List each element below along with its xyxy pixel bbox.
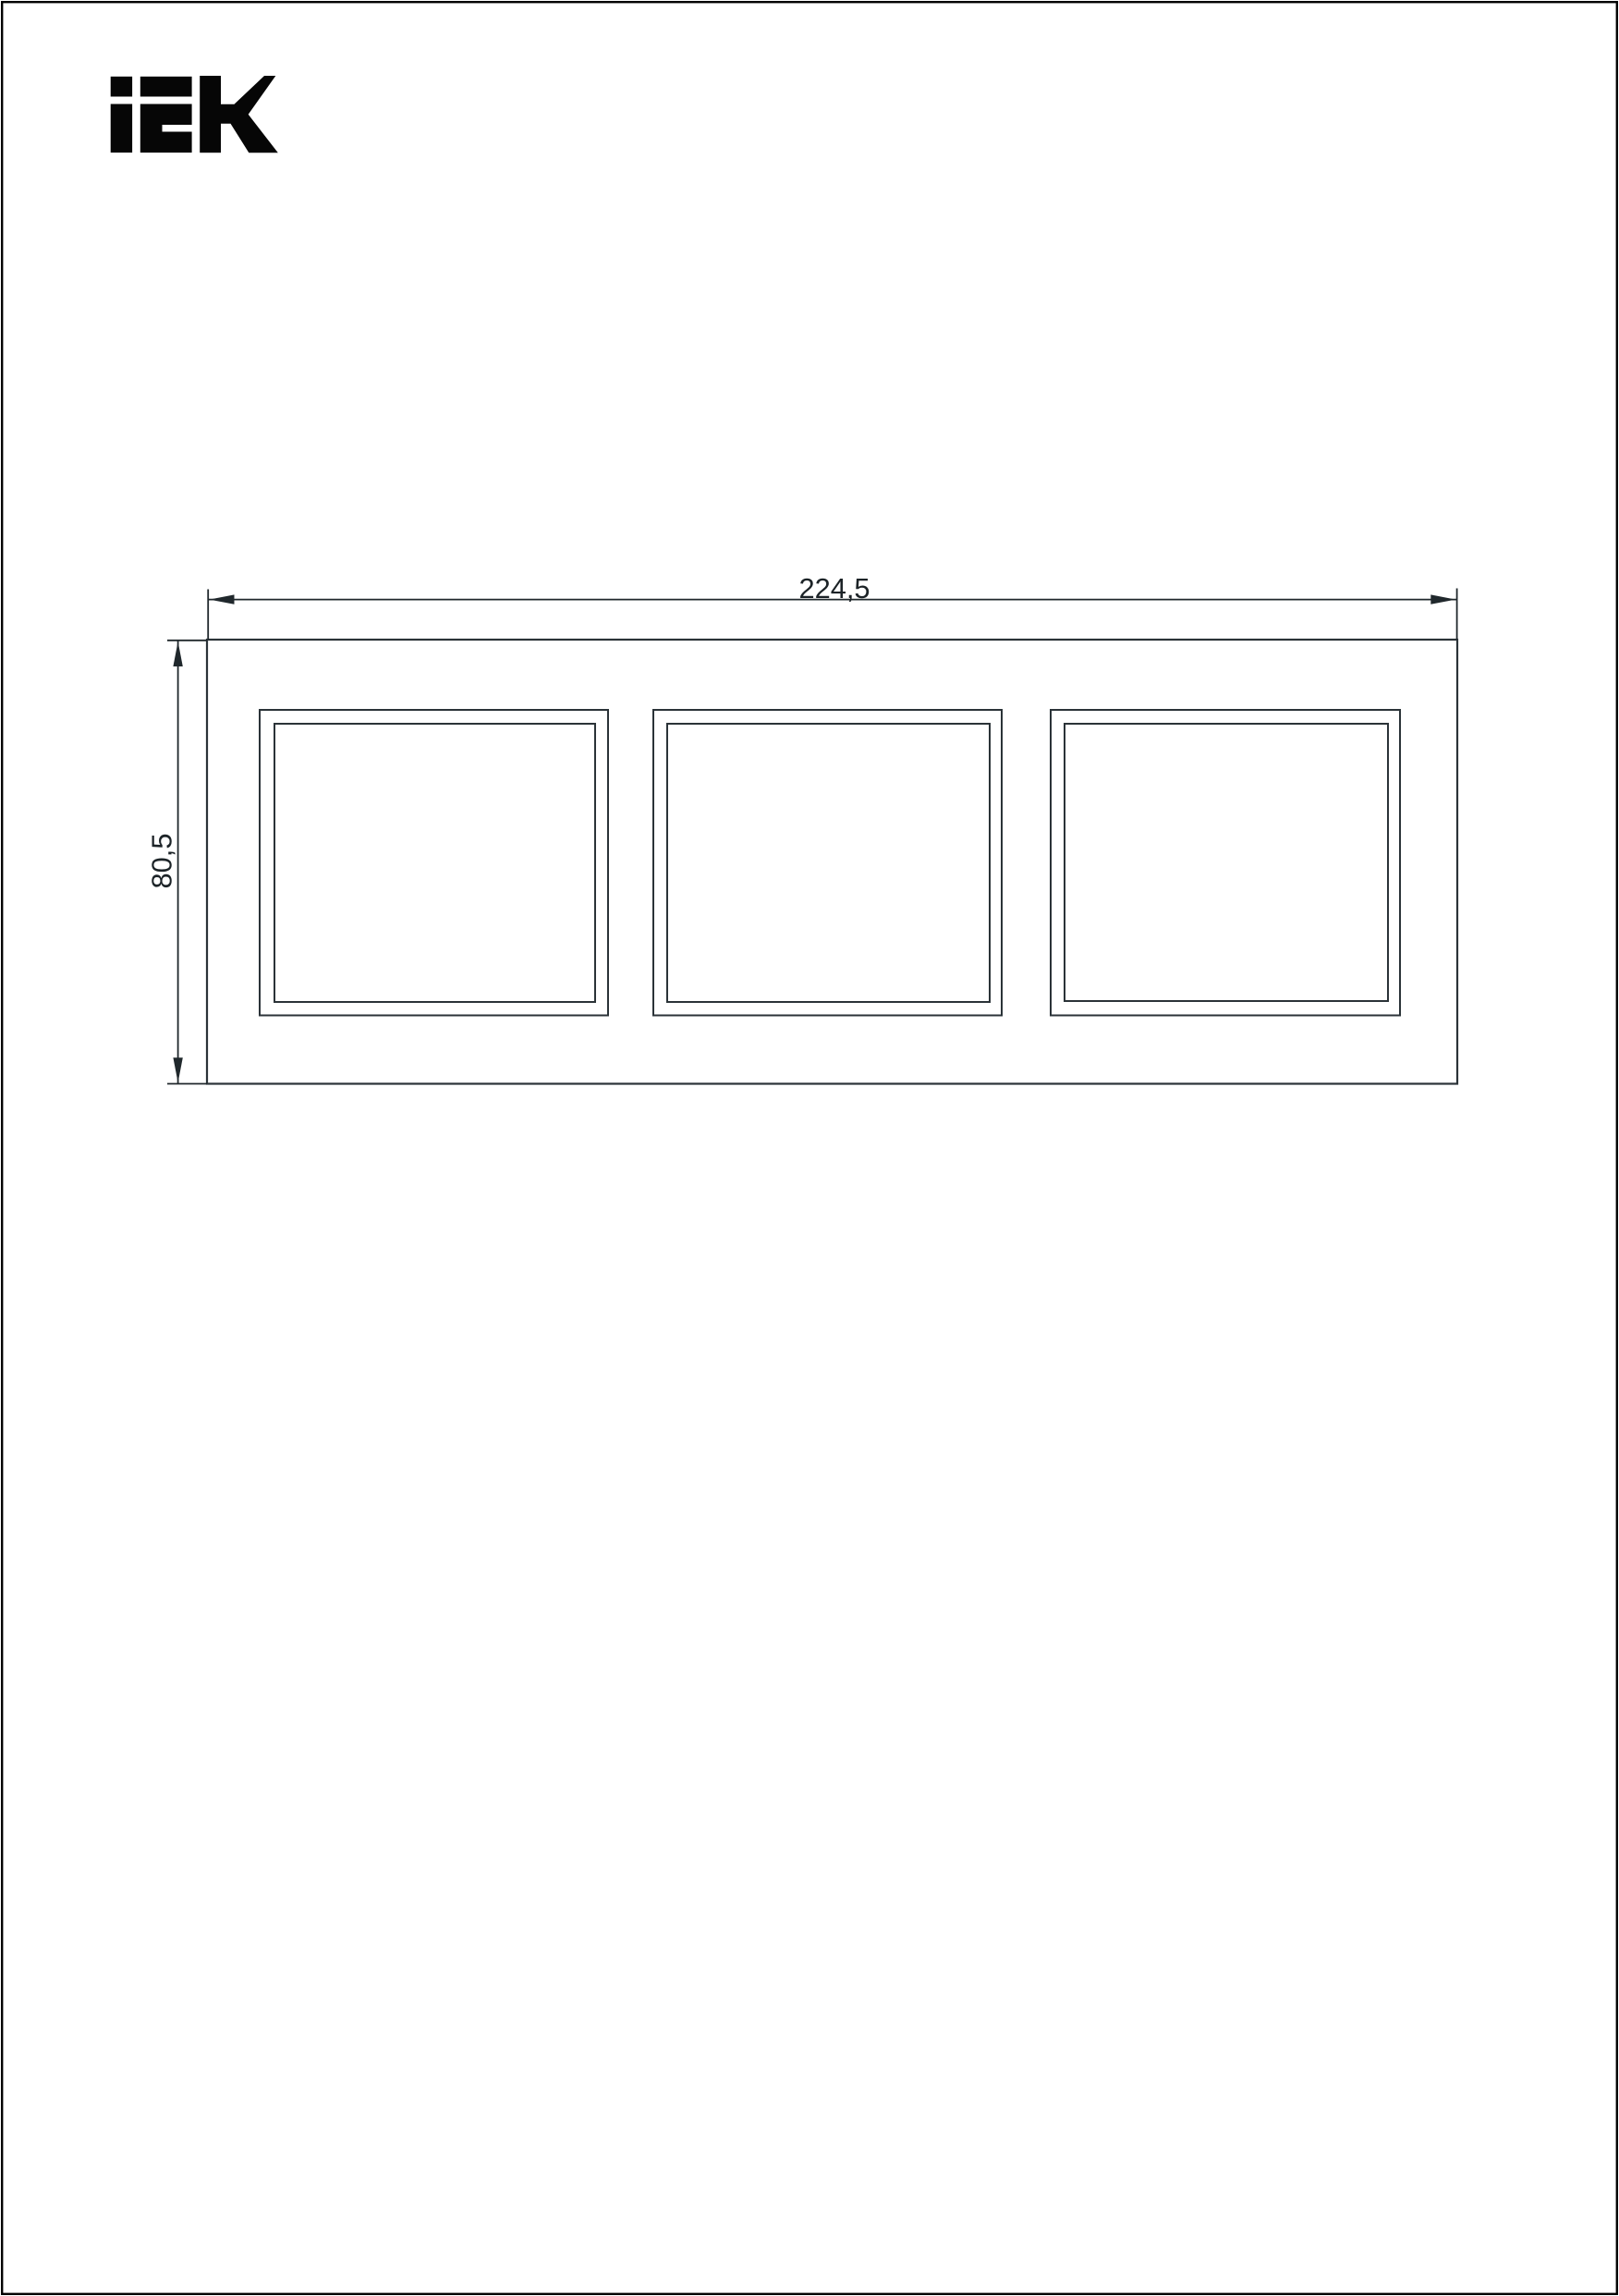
svg-text:224,5: 224,5 bbox=[798, 572, 870, 605]
svg-text:80,5: 80,5 bbox=[146, 834, 178, 889]
